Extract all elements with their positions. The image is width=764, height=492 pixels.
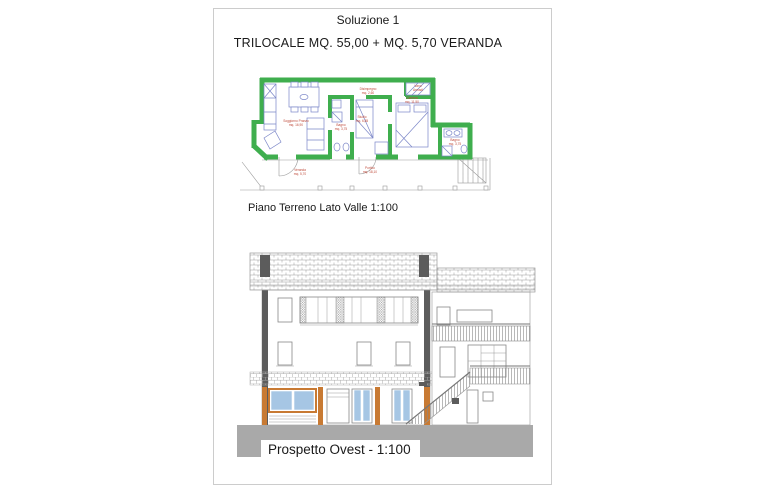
balcony-railing (432, 324, 530, 341)
side-door (467, 390, 478, 423)
elevation-caption: Prospetto Ovest - 1:100 (261, 440, 420, 460)
chimney-right (419, 255, 429, 277)
elevation-drawing (213, 240, 551, 472)
svg-text:mq. 18,10: mq. 18,10 (363, 170, 377, 174)
svg-text:mq. 5,70: mq. 5,70 (294, 172, 307, 176)
landing-railing (470, 366, 530, 384)
stone-band (250, 372, 437, 385)
french-door-2 (392, 389, 412, 423)
main-roof (250, 253, 437, 290)
floor-plan-caption: Piano Terreno Lato Valle 1:100 (248, 202, 398, 214)
svg-text:mq. 2,60: mq. 2,60 (362, 91, 375, 95)
page-subtitle: TRILOCALE MQ. 55,00 + MQ. 5,70 VERANDA (213, 36, 523, 50)
page: Soluzione 1 TRILOCALE MQ. 55,00 + MQ. 5,… (0, 0, 764, 492)
svg-text:mq. 16,90: mq. 16,90 (289, 123, 303, 127)
right-roof (437, 268, 535, 292)
svg-text:mq. 3,75: mq. 3,75 (335, 127, 348, 131)
page-title: Soluzione 1 (213, 13, 523, 27)
svg-text:Armadi: Armadi (413, 88, 423, 92)
svg-text:mq. 11,50: mq. 11,50 (405, 100, 419, 104)
main-building (250, 253, 437, 425)
svg-text:mq. 6,85: mq. 6,85 (356, 119, 369, 123)
chimney-left (260, 255, 270, 277)
stairs (458, 158, 486, 183)
entry-door (327, 389, 349, 423)
svg-text:mq. 3,75: mq. 3,75 (449, 142, 462, 146)
floor-plan-drawing: Soggiorno Pranzo mq. 16,90 Disimpegno mq… (213, 70, 551, 202)
french-door-1 (352, 389, 372, 423)
